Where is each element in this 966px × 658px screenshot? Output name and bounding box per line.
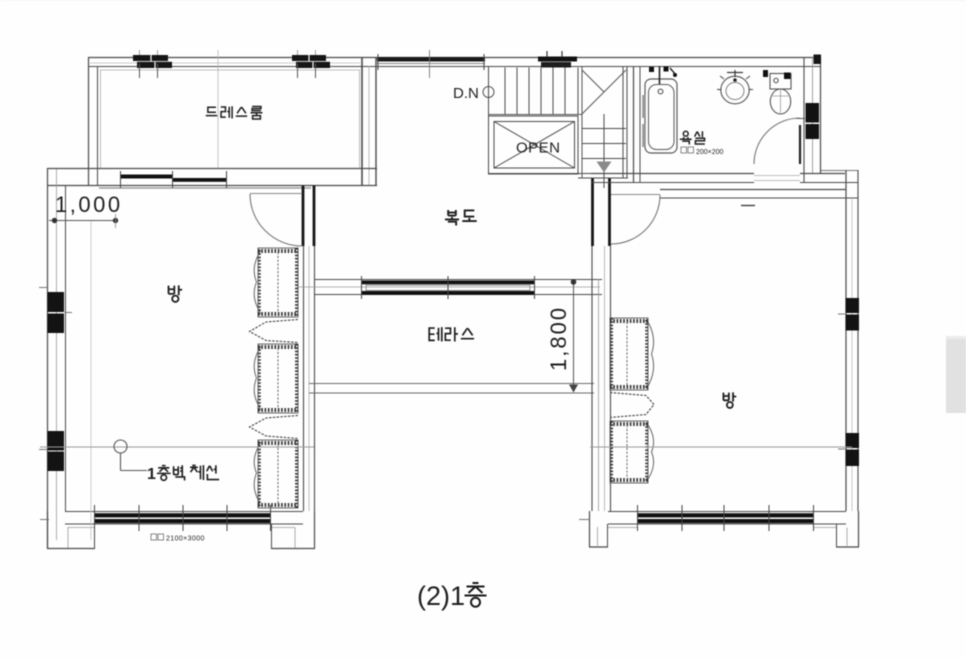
svg-text:D.N: D.N [453, 85, 479, 102]
svg-text:1,800: 1,800 [546, 306, 571, 371]
svg-text:200×200: 200×200 [696, 149, 724, 156]
svg-text:1: 1 [147, 466, 156, 483]
svg-text:OPEN: OPEN [516, 140, 561, 157]
svg-text:(2)1: (2)1 [417, 581, 465, 611]
svg-text:2100×3000: 2100×3000 [166, 536, 205, 543]
svg-text:1,000: 1,000 [55, 192, 123, 217]
